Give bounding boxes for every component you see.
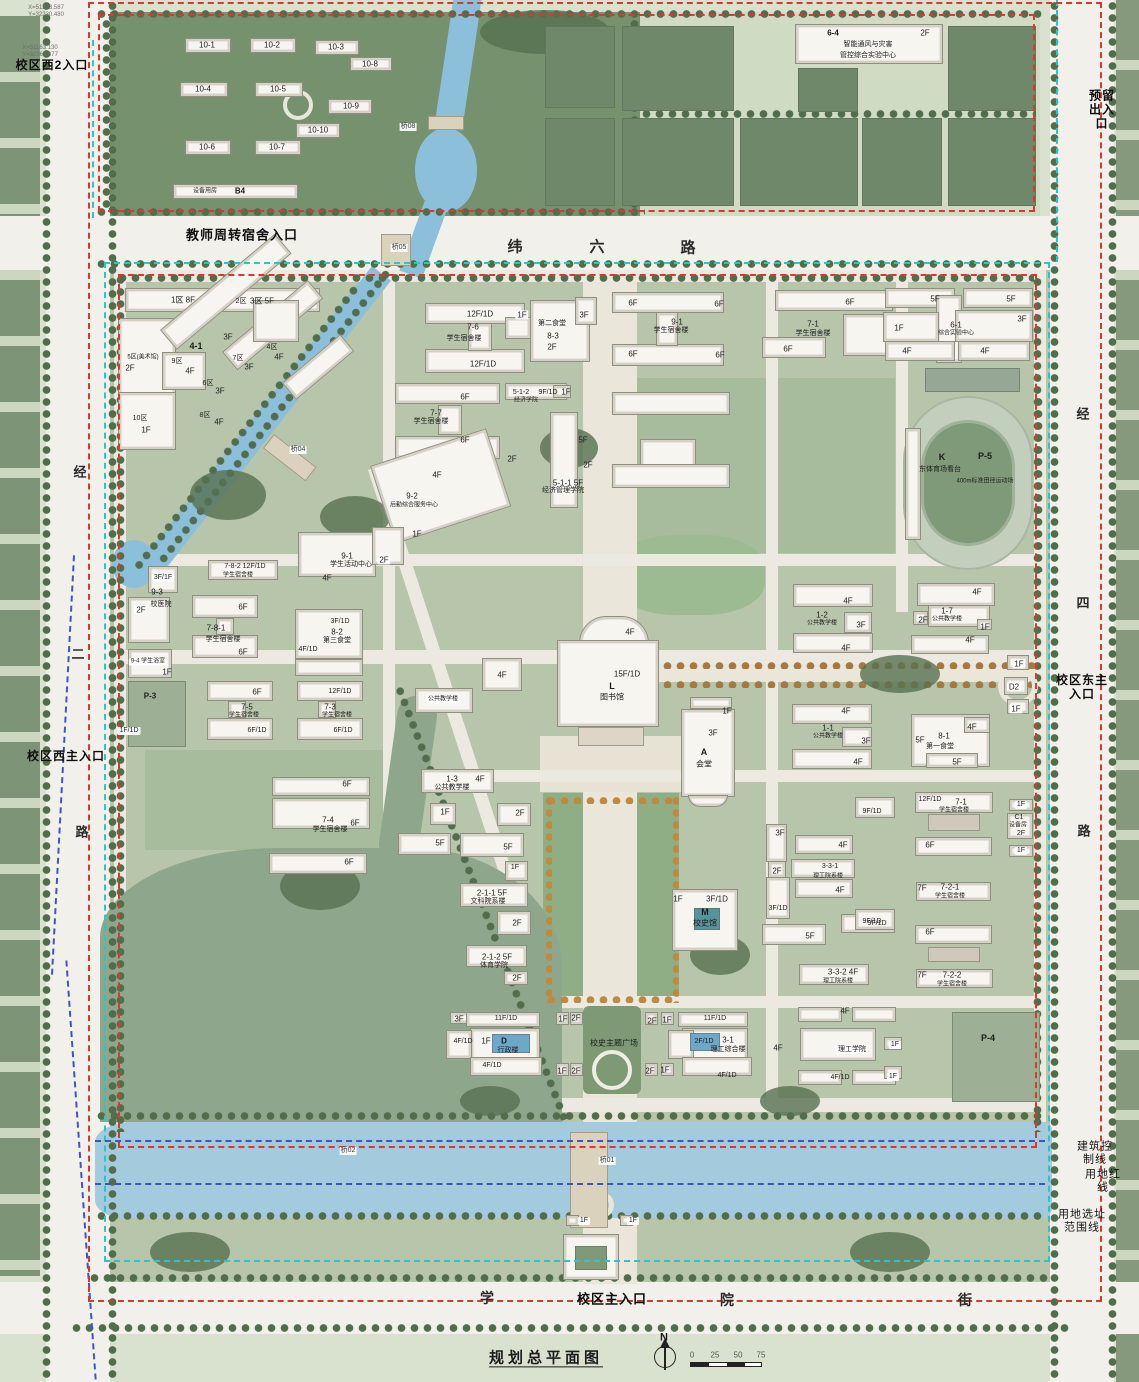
building-label: A	[701, 747, 708, 757]
building-label: 9F/1D	[862, 918, 881, 926]
building-label: 4-1	[189, 341, 202, 351]
north-label: N	[660, 1332, 668, 1345]
building-label: 6F	[252, 687, 261, 696]
building-label: 2F	[571, 1066, 580, 1075]
building-label: 9-1	[671, 317, 683, 326]
building-label: 12F/1D	[470, 359, 496, 368]
building-label: 1F	[440, 807, 449, 816]
building-label: 7-6	[467, 322, 479, 331]
road-name-label: 经	[1076, 408, 1089, 423]
building-label: 3F	[454, 1014, 463, 1023]
building-label: 2F	[583, 460, 592, 469]
building-label: 4F	[972, 587, 981, 596]
building-label: 6F	[342, 779, 351, 788]
road-name-label: 路	[75, 826, 88, 841]
entrance-label: 教师周转宿舍入口	[186, 229, 298, 244]
building-label: 7区	[233, 355, 244, 363]
building-label: 公共教学楼	[813, 734, 843, 741]
building-label: 6F	[628, 349, 637, 358]
building-label: 10-10	[308, 125, 328, 134]
building-label: 1-7	[941, 606, 953, 615]
building-label: 第三食堂	[323, 637, 351, 645]
building-label: 3F	[579, 310, 588, 319]
building-label: 1F	[412, 529, 421, 538]
building-label: 7-1	[807, 319, 819, 328]
entrance-label: 预留出入口	[1084, 89, 1121, 130]
building-label: 2F	[547, 342, 556, 351]
building-label: 公共教学楼	[807, 621, 837, 628]
building-label: 8-2	[331, 627, 343, 636]
building-label: 6F	[628, 298, 637, 307]
building-label: 3F	[223, 332, 232, 341]
building-label: 2区	[236, 298, 247, 306]
building-label: P-3	[144, 691, 156, 700]
building-label: 3-3-1	[822, 863, 838, 871]
building-label: 6区	[203, 380, 214, 388]
building-label: 学生宿舍楼	[939, 808, 969, 815]
road-name-label: 经	[73, 466, 86, 481]
scale-tick-label: 0	[690, 1350, 694, 1359]
building-label: 学生宿舍楼	[414, 418, 449, 426]
building-label: 4F	[773, 1043, 782, 1052]
building-label: 2F	[571, 1013, 580, 1022]
building-label: 1-1	[822, 723, 834, 732]
building-label: 1F	[515, 310, 528, 319]
building-label: 2F	[1017, 830, 1025, 838]
building-label: 4F/1D	[717, 1072, 736, 1080]
building-label: 4F	[475, 774, 484, 783]
building-label: 4F	[497, 670, 506, 679]
building-label: 7-8-2 12F/1D	[224, 563, 265, 571]
building-label: 9区	[172, 358, 183, 366]
building-label: 6F	[238, 602, 247, 611]
building-label: 6F/1D	[247, 727, 266, 735]
building-label: 12F/1D	[467, 309, 493, 318]
building-label: 校医院	[151, 601, 172, 609]
building-label: 4F	[902, 346, 911, 355]
building-label: 4F	[841, 706, 850, 715]
building-label: 行政楼	[498, 1047, 519, 1055]
building-label: 综合实验中心	[938, 331, 974, 338]
building-label: 9F/1D	[862, 808, 881, 816]
building-label: 1-2	[816, 610, 828, 619]
building-label: K	[939, 452, 946, 462]
building-label: 3F/1D	[330, 618, 349, 626]
coordinate-label: X=51203.587 Y=32230.480	[28, 5, 64, 19]
building-label: 7-4	[322, 815, 334, 824]
building-label: 6F/1D	[333, 727, 352, 735]
building-label: 2F	[507, 454, 516, 463]
building-label: 10-3	[328, 42, 344, 51]
building-label: 5F	[1006, 294, 1015, 303]
building-label: 12F/1D	[329, 688, 352, 696]
building-label: 4F	[322, 573, 331, 582]
building-label: 4F	[840, 1006, 849, 1015]
building-label: D2	[1007, 682, 1021, 691]
building-label: 1F	[889, 1041, 901, 1049]
building-label: 1F	[673, 894, 682, 903]
entrance-label: 校区主入口	[577, 1293, 647, 1308]
building-label: 1F/1D	[117, 727, 140, 735]
legend-line-label: 用地选址范围线	[1054, 1208, 1111, 1233]
scale-tick-label: 50	[734, 1350, 743, 1359]
building-label: 1F	[722, 706, 731, 715]
building-label: 3F	[856, 620, 865, 629]
building-label: 6F	[460, 392, 469, 401]
building-label: 理工综合楼	[711, 1046, 746, 1054]
building-label: 6F	[350, 818, 359, 827]
building-label: 5-1-2	[513, 389, 529, 397]
building-label: B4	[235, 186, 245, 195]
building-label: M	[701, 907, 709, 917]
building-label: 文科院系楼	[471, 898, 506, 906]
building-label: 4F/1D	[482, 1062, 501, 1070]
scale-tick-label: 75	[757, 1350, 766, 1359]
building-label: 4区	[267, 344, 278, 352]
bridge-label: 桥08	[400, 123, 417, 131]
building-label: 10-8	[362, 59, 378, 68]
building-label: 学生宿舍楼	[322, 713, 352, 720]
building-label: 6-4	[827, 28, 839, 37]
building-label: 1F	[578, 1217, 590, 1225]
building-label: 2F	[512, 973, 521, 982]
building-label: 6F	[238, 647, 247, 656]
building-label: 6F	[925, 927, 934, 936]
building-label: 6F	[714, 299, 723, 308]
building-label: 4F	[214, 417, 223, 426]
building-label: 10-1	[199, 40, 215, 49]
building-label: 2F	[920, 28, 929, 37]
building-label: 7-5	[241, 702, 253, 711]
building-label: 1F	[162, 667, 171, 676]
building-label: 3F	[244, 362, 253, 371]
building-label: 6F	[460, 435, 469, 444]
building-label: 4F	[965, 635, 974, 644]
building-label: 7F	[917, 970, 926, 979]
building-label: 2-1-2 5F	[482, 952, 512, 961]
building-label: 4F	[841, 643, 850, 652]
tree-row	[40, 0, 53, 1382]
bridge-label: 桥04	[290, 446, 307, 454]
coordinate-label: X=51163.130 Y=32363.377	[22, 45, 58, 59]
building-label: 2F/1D	[694, 1038, 713, 1046]
building-label: 10-6	[199, 142, 215, 151]
building-label: 4F	[835, 885, 844, 894]
building-label: L	[609, 681, 615, 691]
building-label: 1F	[662, 1015, 671, 1024]
building-label: 1F	[1012, 659, 1025, 668]
building-label: 4F	[838, 840, 847, 849]
building-label: 8-3	[547, 331, 559, 340]
road-name-label: 学	[480, 1290, 494, 1306]
building-label: 设备房	[1009, 823, 1027, 830]
building-label: 校史馆	[693, 918, 717, 927]
building-label: 1F	[511, 864, 519, 872]
building-label: 1F	[980, 622, 989, 631]
building-label: 15F/1D	[614, 669, 640, 678]
building-label: 智能通风与灾害	[844, 41, 893, 49]
building-label: 1F	[894, 323, 903, 332]
building-label: 学生宿舍楼	[206, 636, 241, 644]
building-label: 校史主题广场	[590, 1038, 638, 1047]
building-label: 2F	[377, 555, 390, 564]
building-label: 9-4 学生浴室	[129, 659, 167, 666]
building-label: 4F	[185, 366, 194, 375]
building-label: 5F	[805, 931, 814, 940]
building-label: 1F	[481, 1036, 490, 1045]
building-label: 3F	[861, 736, 870, 745]
scale-tick-label: 25	[711, 1350, 720, 1359]
building-label: 11F/1D	[704, 1015, 726, 1023]
building-label: 11F/1D	[495, 1015, 517, 1023]
building-label: 5区(美术馆)	[127, 355, 158, 362]
building-label: 1F	[557, 1066, 566, 1075]
building-label: 3-1	[722, 1035, 734, 1044]
road-name-label: 四	[1076, 597, 1089, 612]
building-label: 第二食堂	[538, 320, 566, 328]
building-label: 公共教学楼	[435, 784, 470, 792]
building-label: 学生活动中心	[330, 561, 372, 569]
building-label: 7-7	[430, 408, 442, 417]
building-label: 2F	[647, 1016, 656, 1025]
building-label: 10-5	[270, 84, 286, 93]
building-label: 9F/1D	[538, 389, 557, 397]
bridge-label: 桥05	[391, 244, 408, 252]
building-label: 4F/1D	[830, 1074, 849, 1082]
building-label: 5F	[915, 735, 924, 744]
bridge-label: 桥01	[599, 1157, 616, 1165]
building-label: 6F	[715, 350, 724, 359]
building-label: 9-2	[406, 491, 418, 500]
building-label: P-5	[978, 451, 992, 461]
building-label: 2F	[645, 1066, 654, 1075]
building-label: 10-2	[264, 40, 280, 49]
building-label: 3F/1D	[706, 894, 728, 903]
road-name-label: 六	[589, 238, 604, 255]
building-label: 1F	[1009, 704, 1022, 713]
building-label: 8-1	[938, 731, 950, 740]
building-label: 6F	[925, 840, 934, 849]
building-label: 6F	[344, 857, 353, 866]
building-label: D	[501, 1036, 507, 1045]
building-label: 第一食堂	[926, 743, 954, 751]
building-label: 10-9	[343, 101, 359, 110]
building-label: P-4	[981, 1033, 995, 1043]
building-label: 1F	[887, 1073, 899, 1081]
building-label: 2F	[772, 866, 781, 875]
building-label: 3F	[215, 386, 224, 395]
building-label: 9-1	[341, 551, 353, 560]
building-label: 7-2-2	[943, 970, 962, 979]
building-label: 6-1	[950, 320, 962, 329]
building-label: 1F	[1015, 847, 1027, 855]
building-label: 3F	[708, 728, 717, 737]
building-label: 经济管理学院	[542, 487, 584, 495]
building-label: 4F	[274, 352, 283, 361]
building-label: 理工院系楼	[813, 874, 843, 881]
scale-bar	[690, 1362, 762, 1367]
building-label: 5F	[930, 294, 939, 303]
building-label: 10区	[133, 415, 148, 423]
building-label: 7-3	[324, 702, 336, 711]
building-label: 理工学院	[836, 1046, 868, 1054]
building-label: 理工院系楼	[823, 979, 853, 986]
building-label: 4F	[980, 346, 989, 355]
building-label: 1F	[1015, 801, 1027, 809]
building-label: 3区 5F	[250, 296, 274, 305]
building-label: 1F	[660, 1065, 669, 1074]
building-label: 4F/1D	[453, 1038, 472, 1046]
farm-plots-left	[0, 16, 40, 1276]
building-label: 3F/1D	[768, 905, 787, 913]
building-label: 5F	[952, 757, 961, 766]
building-label: 2-1-1 5F	[477, 888, 507, 897]
building-label: 9-3	[151, 587, 163, 596]
building-label: 2F	[134, 605, 147, 614]
building-label: 6F	[845, 297, 854, 306]
building-label: 5F	[578, 435, 587, 444]
building-label: 2F	[512, 918, 521, 927]
building-label: 2F	[125, 363, 134, 372]
building-label: 学生宿舍楼	[796, 330, 831, 338]
legend-line-label: 建筑控制线	[1073, 1140, 1117, 1165]
building-label: 7-8-1	[207, 623, 226, 632]
building-label: 5F	[435, 838, 444, 847]
building-label: 3F/1F	[152, 574, 174, 582]
road-name-label: 二	[71, 648, 84, 663]
building-label: 学生宿舍楼	[447, 335, 482, 343]
building-label: 1F	[561, 387, 570, 396]
building-label: 会堂	[696, 759, 712, 768]
building-label: 学生宿舍楼	[229, 713, 259, 720]
building-label: 学生宿舍楼	[654, 327, 689, 335]
building-label: 公共教学楼	[932, 617, 962, 624]
building-label: 1F	[627, 1217, 639, 1225]
entrance-label: 校区西2入口	[16, 59, 89, 73]
plan-title: 规划总平面图	[489, 1349, 603, 1366]
building-label: 体育学院	[480, 962, 508, 970]
building-label: 东体育场看台	[919, 466, 961, 474]
building-label: 1F	[558, 1014, 567, 1023]
building-label: 1-3	[446, 774, 458, 783]
tree-row	[70, 1322, 1070, 1334]
building-label: 学生宿舍楼	[935, 894, 965, 901]
building-label: 4F	[853, 757, 862, 766]
building-label: 2F	[515, 808, 524, 817]
road-name-label: 路	[1077, 825, 1090, 840]
building-label: 公共教学楼	[426, 697, 460, 704]
building-label: 后勤综合服务中心	[390, 503, 438, 510]
building-label: 7-1	[955, 797, 967, 806]
building-label: 3F	[775, 828, 784, 837]
building-label: C1	[1015, 814, 1024, 822]
building-label: 4F	[625, 627, 634, 636]
building-label: 4F	[432, 470, 441, 479]
building-label: 8区	[200, 412, 211, 420]
road-name-label: 纬	[507, 238, 522, 255]
building-label: 7-2-1	[941, 882, 960, 891]
road-name-label: 院	[720, 1292, 734, 1308]
building-label: 1F	[141, 425, 150, 434]
building-label: 4F/1D	[298, 646, 317, 654]
campus-master-plan: 规划总平面图 N X=51203.587 Y=32230.480X=51163.…	[0, 0, 1139, 1382]
building-label: 10-4	[195, 84, 211, 93]
entrance-label: 校区西主入口	[27, 750, 105, 764]
building-label: 2F	[918, 615, 927, 624]
building-label: 3-3-2 4F	[828, 967, 858, 976]
building-label: 设备用房	[193, 189, 217, 196]
building-label: 5F	[503, 842, 512, 851]
building-label: 4F	[967, 722, 976, 731]
building-label: 图书馆	[600, 692, 624, 701]
building-label: 400m标准田径运动场	[956, 479, 1013, 486]
bridge-label: 桥02	[340, 1147, 357, 1155]
building-label: 1区 8F	[171, 295, 195, 304]
road-name-label: 街	[958, 1292, 972, 1308]
legend-line-label: 用地红线	[1085, 1168, 1121, 1193]
building-label: 管控综合实验中心	[840, 52, 896, 60]
building-label: 学生宿舍楼	[937, 982, 967, 989]
building-label: 7F	[917, 883, 926, 892]
road-name-label: 路	[680, 239, 695, 256]
entrance-label: 校区东主入口	[1054, 674, 1111, 702]
building-label: 4F	[843, 596, 852, 605]
building-label: 6F	[783, 344, 792, 353]
building-label: 10-7	[269, 142, 285, 151]
building-label: 3F	[1017, 314, 1026, 323]
building-label: 经济学院	[514, 398, 538, 405]
building-label: 12F/1D	[919, 796, 942, 804]
building-label: 学生宿舍楼	[223, 573, 253, 580]
building-label: 学生宿舍楼	[313, 826, 348, 834]
